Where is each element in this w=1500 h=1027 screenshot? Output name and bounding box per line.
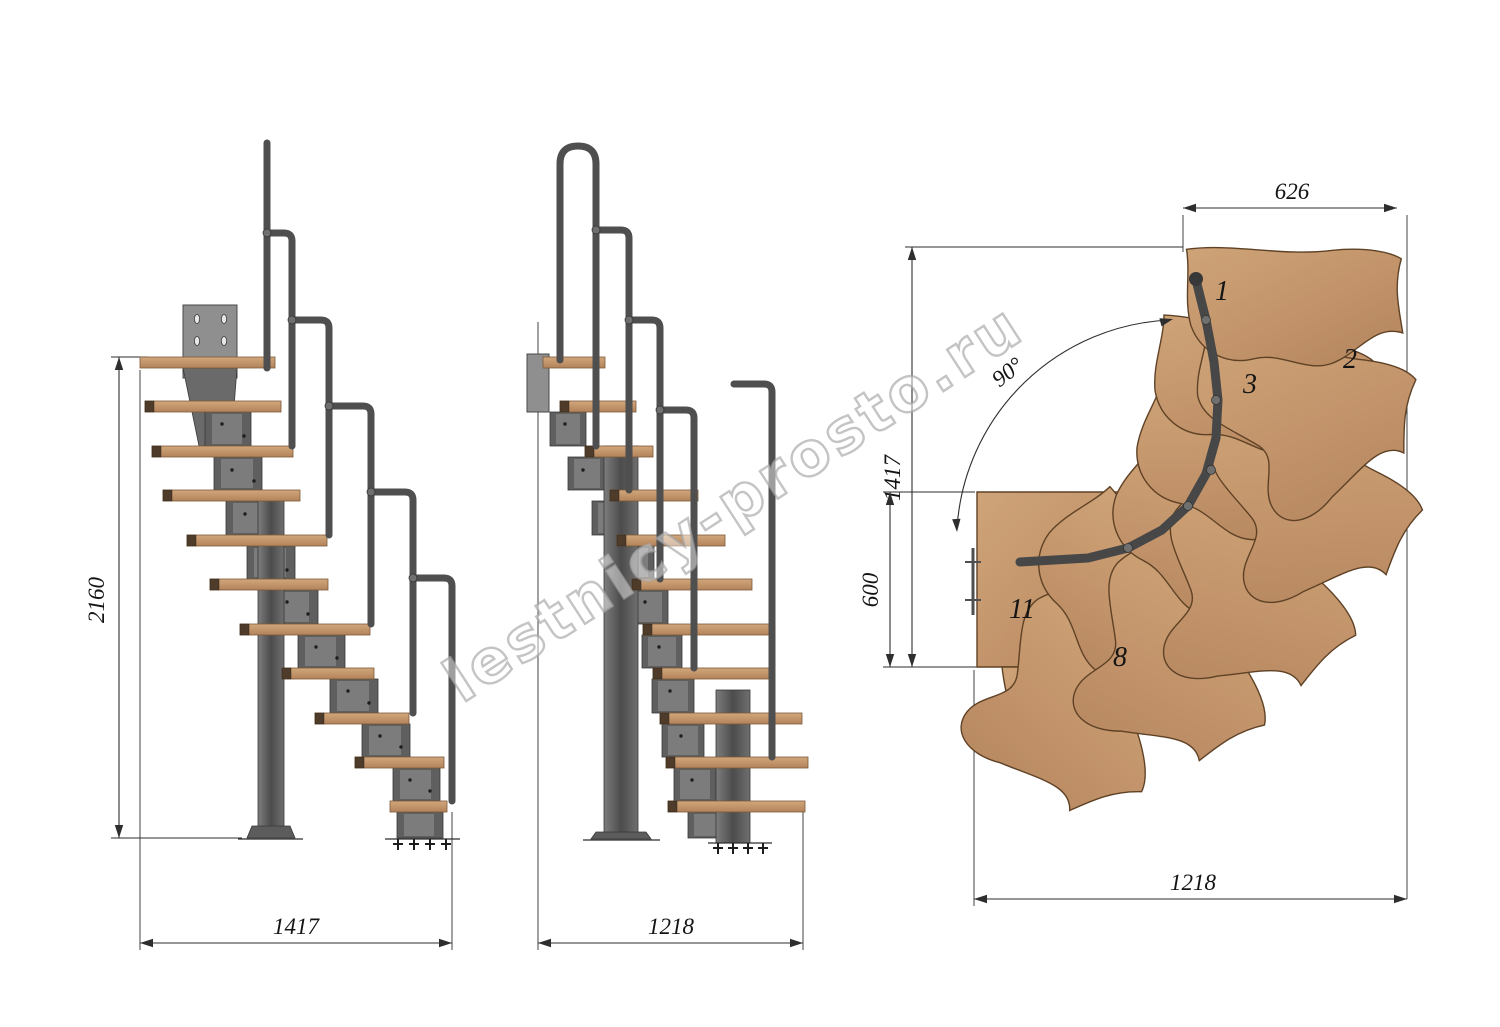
plan-top-dimension: 626 — [1183, 179, 1397, 212]
side-floor-anchors — [385, 839, 460, 850]
support-column — [258, 500, 284, 830]
column-base — [247, 826, 295, 838]
tread-number-1: 1 — [1215, 276, 1229, 307]
tread-number-3: 3 — [1242, 369, 1257, 400]
side-width-label: 1417 — [273, 914, 321, 939]
side-width-dimension: 1417 — [140, 914, 452, 947]
side-height-label: 2160 — [84, 577, 109, 624]
front-floor-anchors — [708, 843, 772, 854]
plan-landing-label: 600 — [858, 572, 883, 607]
plan-top-label: 626 — [1275, 179, 1310, 204]
front-support-column — [604, 446, 638, 834]
tread-number-2: 2 — [1343, 344, 1357, 375]
front-width-dimension: 1218 — [538, 914, 803, 947]
plan-landing-dimension: 600 — [858, 492, 894, 667]
watermark-text: lestnicy-prosto.ru — [432, 290, 1036, 716]
plan-view: 1 2 3 8 11 626 1417 600 — [858, 179, 1432, 906]
plan-bottom-dimension: 1218 — [974, 870, 1407, 903]
plan-left-dimension: 1417 — [880, 247, 916, 667]
side-elevation-view: 2160 1417 — [84, 143, 460, 950]
stair-technical-drawing: 2160 1417 — [0, 0, 1500, 1027]
drawing-svg: 2160 1417 — [0, 0, 1500, 1027]
tread-number-11: 11 — [1009, 594, 1035, 625]
tread-number-8: 8 — [1113, 642, 1127, 673]
side-height-dimension: 2160 — [84, 357, 123, 838]
front-width-label: 1218 — [648, 914, 695, 939]
plan-left-label: 1417 — [880, 454, 905, 502]
plan-bottom-label: 1218 — [1170, 870, 1217, 895]
